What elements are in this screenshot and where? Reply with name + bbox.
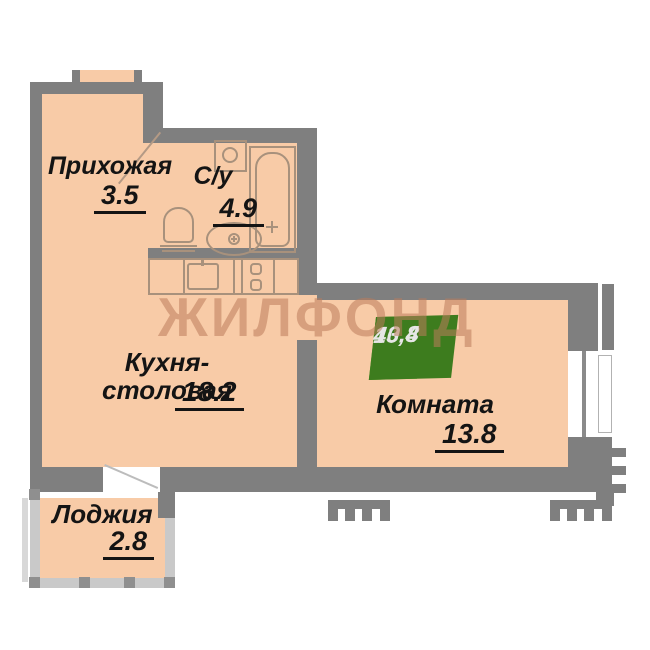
wall bbox=[297, 128, 317, 295]
wall bbox=[30, 82, 42, 492]
exterior-hatch bbox=[362, 509, 372, 521]
hallway-label: Прихожая bbox=[40, 152, 180, 180]
loggia-post bbox=[79, 577, 90, 588]
room-label: Комната bbox=[375, 390, 495, 418]
exterior-hatch bbox=[328, 509, 338, 521]
window-icon bbox=[582, 351, 586, 437]
loggia-label: Лоджия bbox=[45, 500, 160, 528]
exterior-hatch bbox=[550, 500, 612, 509]
wall bbox=[297, 340, 317, 467]
loggia-wall bbox=[30, 578, 175, 588]
exterior-hatch bbox=[567, 509, 577, 521]
window-sill bbox=[598, 355, 612, 433]
sink-drain-mark bbox=[233, 236, 235, 242]
drain-mark bbox=[271, 221, 273, 233]
wall bbox=[30, 82, 160, 94]
wall-notch bbox=[340, 492, 377, 500]
wall bbox=[158, 492, 175, 518]
loggia-outer-line bbox=[22, 498, 28, 582]
balcony-door-opening bbox=[103, 467, 160, 492]
exterior-hatch bbox=[550, 509, 560, 521]
stove-burner-icon bbox=[250, 263, 262, 275]
loggia-post bbox=[29, 577, 40, 588]
loggia-post bbox=[164, 577, 175, 588]
loggia-wall bbox=[30, 492, 40, 588]
loggia-post bbox=[124, 577, 135, 588]
toilet-base bbox=[162, 250, 195, 252]
exterior-hatch bbox=[612, 448, 626, 457]
exterior-hatch bbox=[380, 509, 390, 521]
hallway-floor bbox=[42, 94, 148, 467]
wall-notch bbox=[560, 492, 596, 500]
watermark: ЖИЛФОНД bbox=[158, 288, 518, 346]
wall bbox=[598, 437, 612, 495]
bathroom-label: С/у bbox=[178, 162, 248, 190]
exterior-hatch bbox=[584, 509, 594, 521]
washing-machine-drum bbox=[222, 147, 238, 163]
toilet-base bbox=[160, 245, 197, 247]
floor-plan: Прихожая 3.5 С/у 4.9 Кухня-столовая 18.2… bbox=[0, 0, 650, 650]
exterior-hatch bbox=[328, 500, 390, 509]
faucet-icon bbox=[201, 258, 204, 266]
wall bbox=[568, 283, 598, 351]
loggia-post bbox=[29, 489, 40, 500]
exterior-hatch bbox=[345, 509, 355, 521]
toilet-icon bbox=[163, 207, 194, 243]
wall bbox=[602, 284, 614, 350]
exterior-hatch bbox=[612, 466, 626, 475]
exterior-hatch bbox=[602, 509, 612, 521]
wall bbox=[134, 70, 142, 82]
exterior-hatch bbox=[612, 484, 626, 493]
wall bbox=[72, 70, 80, 82]
